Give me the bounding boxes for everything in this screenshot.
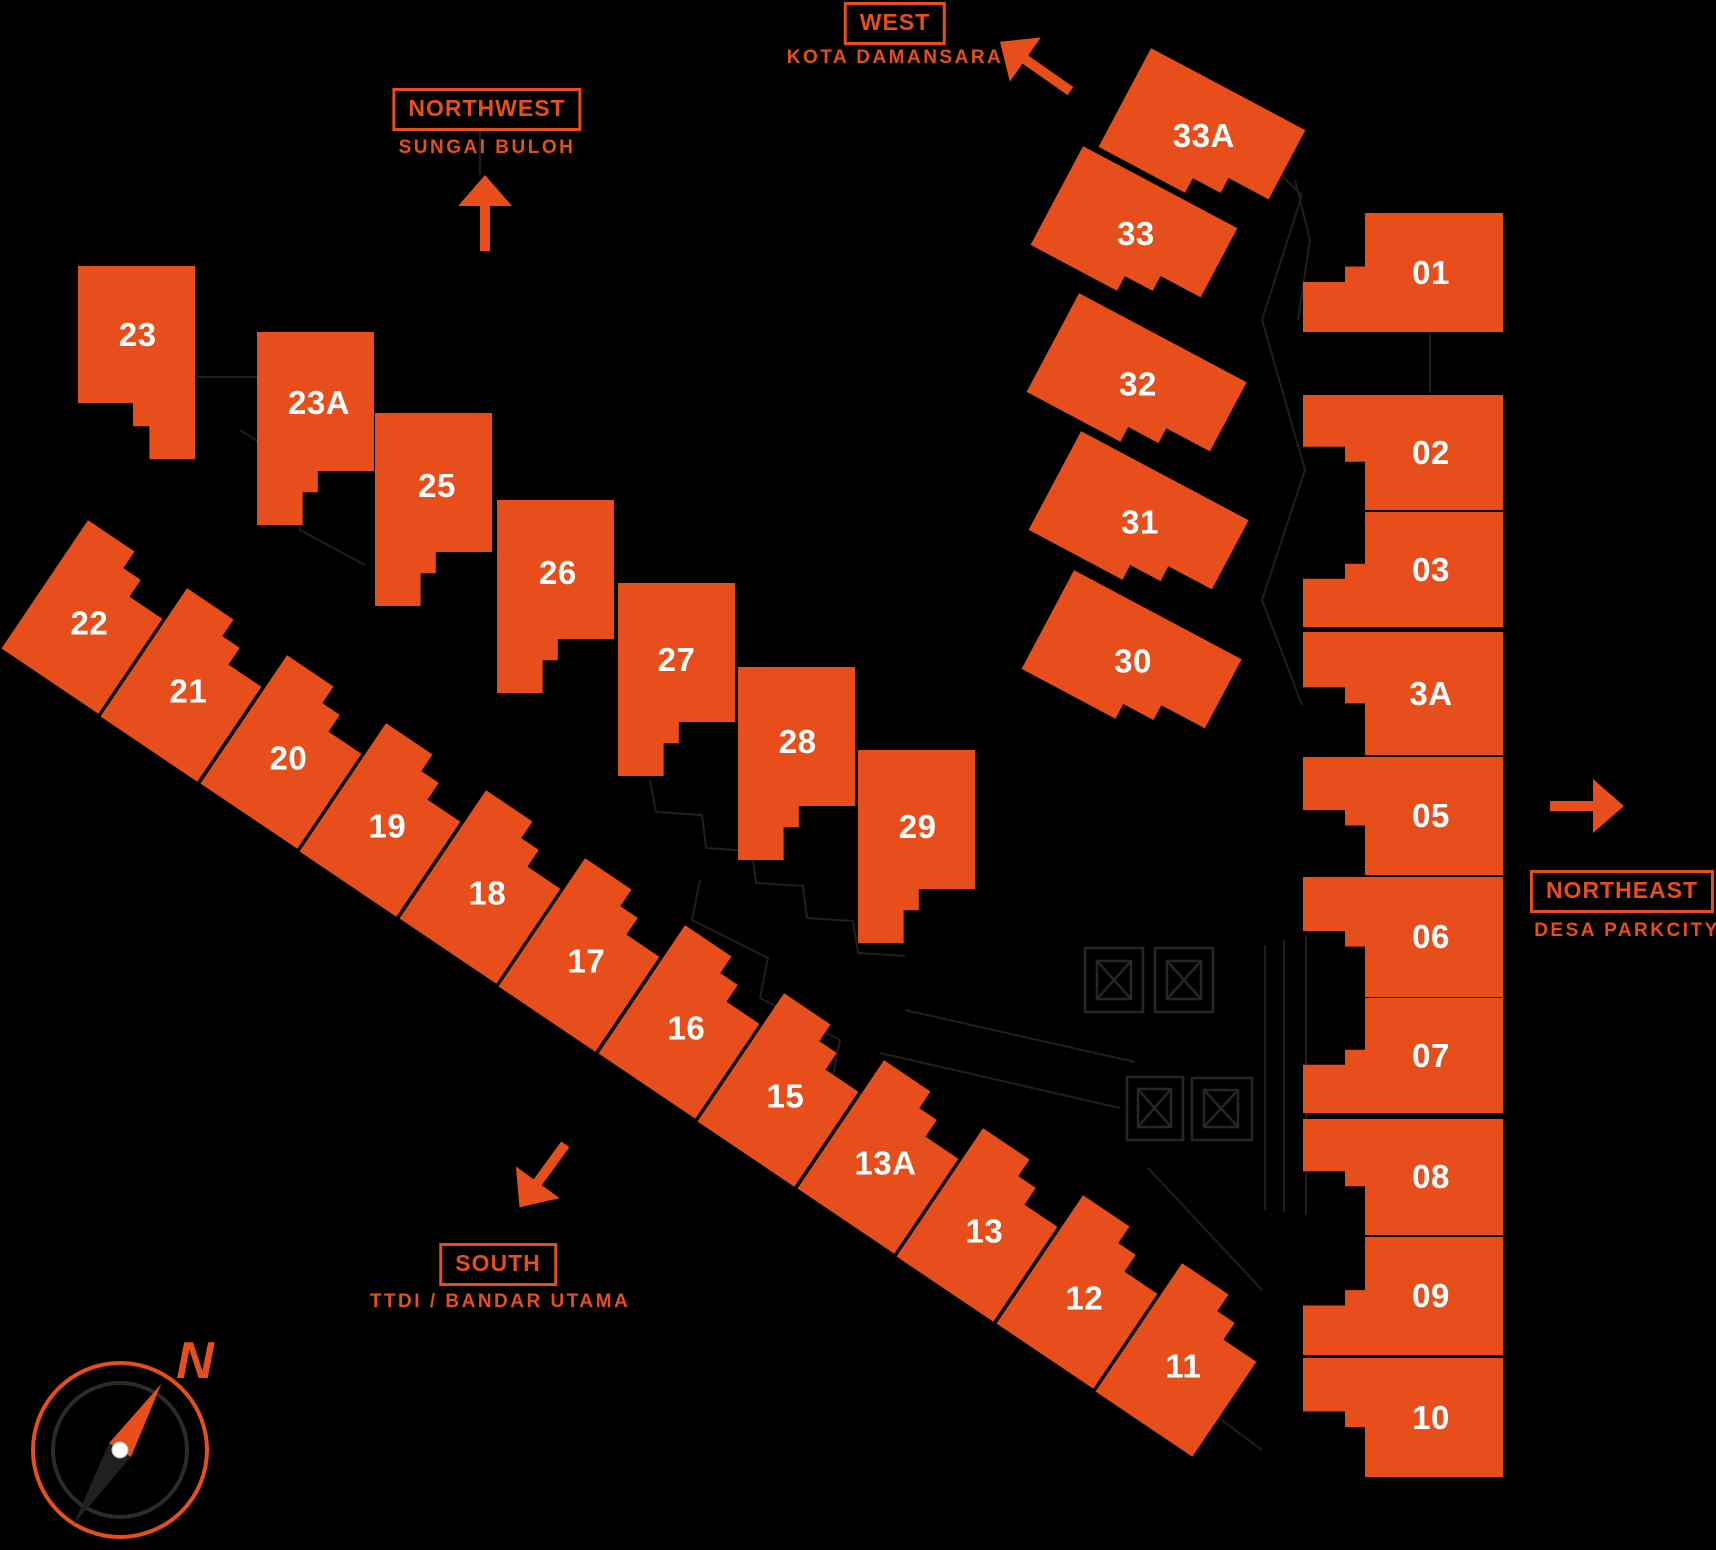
- direction-box-northwest: NORTHWEST: [392, 88, 581, 131]
- lot-label: 18: [468, 874, 506, 912]
- lot-label: 3A: [1409, 675, 1452, 713]
- lot-label: 02: [1412, 434, 1450, 472]
- direction-subtitle-west: KOTA DAMANSARA: [787, 47, 1004, 69]
- lot-label: 06: [1412, 918, 1450, 956]
- arrow-right-icon: [1548, 778, 1624, 834]
- lot-label: 28: [779, 723, 817, 761]
- lot-label: 29: [899, 808, 937, 846]
- lot-label: 12: [1065, 1279, 1103, 1317]
- lot-label: 20: [269, 739, 307, 777]
- lot-label: 09: [1412, 1277, 1450, 1315]
- compass-north-label: N: [176, 1332, 215, 1390]
- lot-label: 10: [1412, 1399, 1450, 1437]
- lot-label: 26: [539, 554, 577, 592]
- lot-label: 15: [766, 1077, 804, 1115]
- lot-label: 03: [1412, 551, 1450, 589]
- lot-label: 16: [667, 1009, 705, 1047]
- direction-subtitle-northwest: SUNGAI BULOH: [399, 137, 576, 159]
- lot-label: 13A: [854, 1144, 916, 1182]
- lot-label: 23A: [288, 384, 350, 422]
- lot-label: 01: [1412, 254, 1450, 292]
- lot-label: 25: [418, 467, 456, 505]
- lot-label: 08: [1412, 1158, 1450, 1196]
- direction-subtitle-south: TTDI / BANDAR UTAMA: [370, 1291, 630, 1313]
- lot-label: 19: [368, 807, 406, 845]
- direction-box-south: SOUTH: [439, 1243, 557, 1286]
- lot-label: 17: [567, 942, 605, 980]
- lot-label: 30: [1114, 642, 1152, 680]
- direction-box-northeast: NORTHEAST: [1530, 870, 1714, 913]
- direction-subtitle-northeast: DESA PARKCITY: [1534, 920, 1716, 942]
- lot-label: 32: [1119, 365, 1157, 403]
- lot-label: 07: [1412, 1037, 1450, 1075]
- lot-label: 27: [658, 641, 696, 679]
- lot-label: 13: [965, 1212, 1003, 1250]
- lot-label: 33A: [1173, 117, 1235, 155]
- lot-label: 23: [119, 316, 157, 354]
- lot-label: 11: [1165, 1347, 1201, 1385]
- arrow-up-icon: [457, 175, 513, 253]
- lot-label: 31: [1121, 503, 1159, 541]
- compass-center-dot: [112, 1442, 128, 1458]
- direction-box-west: WEST: [844, 2, 946, 45]
- lot-label: 22: [70, 604, 108, 642]
- lot-label: 33: [1117, 215, 1155, 253]
- compass-rose-icon: N: [15, 1320, 245, 1550]
- lot-label: 21: [169, 672, 207, 710]
- lot-label: 05: [1412, 797, 1450, 835]
